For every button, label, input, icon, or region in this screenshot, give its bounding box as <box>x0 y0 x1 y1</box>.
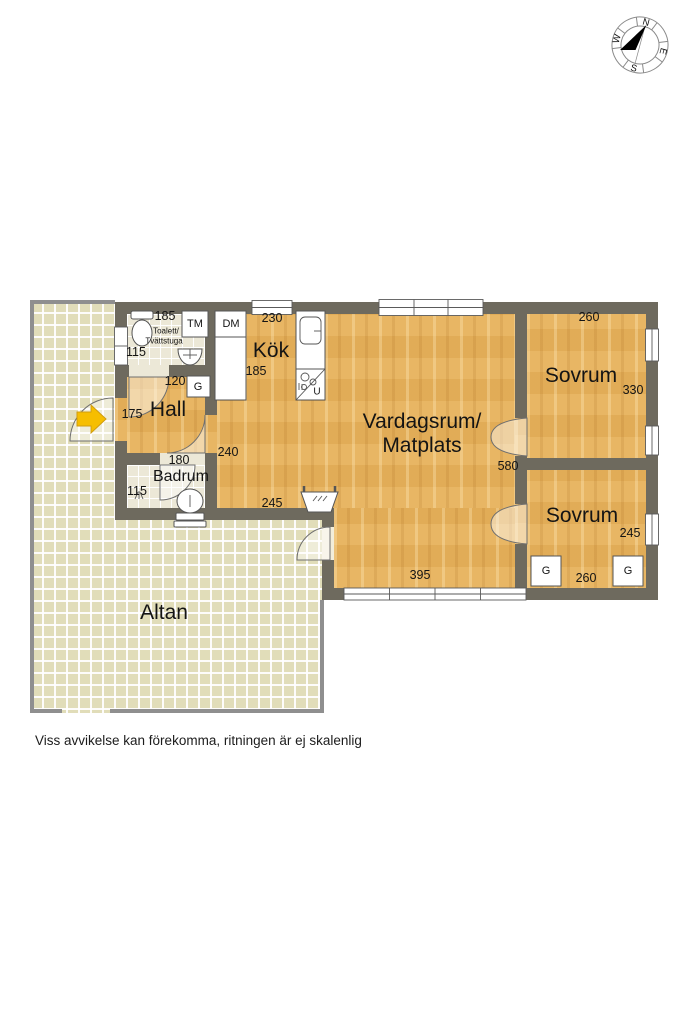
sovrum2-depth-measurement: 245 <box>620 526 641 540</box>
floorplan-page: N E S W 185 TM DM 230 Toalett/ Tvättstug… <box>0 0 683 1024</box>
hall-depth-measurement: 175 <box>122 407 143 421</box>
window-sovrum2-east <box>646 514 659 545</box>
sovrum2-door-arc <box>491 504 527 544</box>
oven-label: U <box>313 387 320 398</box>
window-living-south <box>344 588 526 600</box>
badrum-width-measurement: 180 <box>169 453 190 467</box>
hall-width-measurement: 120 <box>165 374 186 388</box>
toalett-label-line2: Tvättstuga <box>145 337 182 346</box>
badrum-depth-measurement: 115 <box>127 484 147 498</box>
washing-machine-label: TM <box>187 318 203 330</box>
sovrum2-label: Sovrum <box>546 504 618 528</box>
vardagsrum-width-lower-measurement: 245 <box>262 496 283 510</box>
compass-west-label: W <box>611 33 624 45</box>
vardagsrum-depth-measurement: 580 <box>498 459 519 473</box>
altan-door-arc <box>297 527 330 560</box>
toalett-width-measurement: 185 <box>155 309 176 323</box>
fireplace-icon <box>301 486 338 512</box>
hall-label: Hall <box>150 398 186 422</box>
kok-label: Kök <box>253 339 289 363</box>
wardrobe-hall-label: G <box>194 381 203 393</box>
sink-icon-toalett <box>178 349 202 365</box>
sovrum1-label: Sovrum <box>545 364 617 388</box>
toilet-icon-badrum <box>174 489 206 527</box>
sovrum2-width-measurement: 260 <box>576 571 597 585</box>
window-sovrum1-east-a <box>646 329 659 361</box>
compass: N E S W <box>603 6 677 84</box>
sovrum1-door-arc <box>491 418 527 456</box>
toalett-depth-measurement: 115 <box>126 345 146 359</box>
compass-north-label: N <box>641 17 651 29</box>
kok-width-measurement: 230 <box>262 311 283 325</box>
window-living-north <box>379 300 483 316</box>
kitchen-counter <box>296 311 325 400</box>
vardagsrum-label-line1: Vardagsrum/ <box>363 410 482 434</box>
vardagsrum-window-measurement: 395 <box>410 568 431 582</box>
vardagsrum-label-line2: Matplats <box>382 434 461 458</box>
kok-depth-measurement: 185 <box>246 364 267 378</box>
wardrobe-sovrum2-left-label: G <box>542 565 551 577</box>
window-sovrum1-east-b <box>646 426 659 455</box>
dishwasher-label: DM <box>222 318 239 330</box>
sovrum1-depth-measurement: 330 <box>623 383 644 397</box>
disclaimer-text: Viss avvikelse kan förekomma, ritningen … <box>35 733 362 748</box>
wardrobe-sovrum2-right-label: G <box>624 565 633 577</box>
altan-label: Altan <box>140 601 188 625</box>
badrum-label: Badrum <box>153 468 209 486</box>
sovrum1-width-measurement: 260 <box>579 310 600 324</box>
vardagsrum-width-upper-measurement: 240 <box>218 445 239 459</box>
compass-east-label: E <box>657 47 669 56</box>
toalett-label-line1: Toalett/ <box>153 327 179 336</box>
